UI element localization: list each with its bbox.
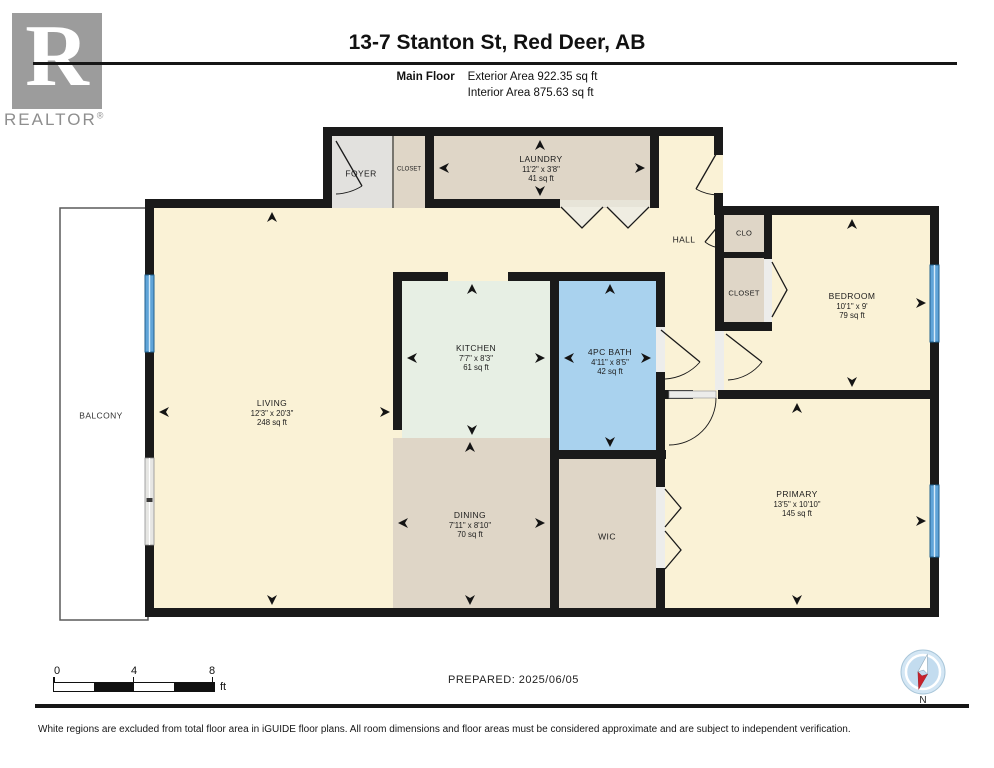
room-label-hall: HALL <box>673 235 696 246</box>
room-label-laundry: LAUNDRY 11'2" x 3'8" 41 sq ft <box>519 154 562 184</box>
page-title: 13-7 Stanton St, Red Deer, AB <box>0 31 994 55</box>
room-label-balcony: BALCONY <box>79 411 122 422</box>
room-label-bath: 4PC BATH 4'11" x 8'5" 42 sq ft <box>588 347 632 377</box>
floor-cream-right <box>656 206 939 617</box>
room-label-bedroom: BEDROOM 10'1" x 9' 79 sq ft <box>829 291 876 321</box>
room-label-clo: CLO <box>736 228 752 237</box>
floorplan-page: R REALTOR® 13-7 Stanton St, Red Deer, AB… <box>0 0 994 768</box>
footer-rule <box>35 704 969 708</box>
scale-segment <box>94 683 134 691</box>
primary-door-leaf <box>669 391 716 398</box>
disclaimer-text: White regions are excluded from total fl… <box>38 724 968 735</box>
room-label-kitchen: KITCHEN 7'7" x 8'3" 61 sq ft <box>456 343 496 373</box>
room-label-closet-top: CLOSET <box>397 166 421 174</box>
room-label-living: LIVING 12'3" x 20'3" 248 sq ft <box>251 398 294 428</box>
interior-area: Interior Area 875.63 sq ft <box>468 85 598 101</box>
scale-label-4: 4 <box>131 665 137 677</box>
room-label-closet-right: CLOSET <box>728 288 759 297</box>
closet-door-sill <box>764 259 772 322</box>
room-label-foyer: FOYER <box>345 169 376 180</box>
bedroom-door-sill <box>715 331 724 390</box>
scale-segment <box>174 683 214 691</box>
laundry-door-sill <box>560 200 650 207</box>
room-label-wic: WIC <box>598 532 616 543</box>
scale-bar <box>53 682 215 692</box>
room-label-primary: PRIMARY 13'5" x 10'10" 145 sq ft <box>773 489 820 519</box>
floorplan-drawing <box>0 0 994 768</box>
bath-door-sill <box>656 327 665 372</box>
area-summary: Exterior Area 922.35 sq ft Interior Area… <box>468 69 598 101</box>
scale-segment <box>54 683 94 691</box>
compass-north-label: N <box>919 695 926 706</box>
subtitle: Main Floor Exterior Area 922.35 sq ft In… <box>0 69 994 101</box>
scale-label-0: 0 <box>54 665 60 677</box>
scale-segment <box>134 683 174 691</box>
compass-icon: N <box>897 646 949 706</box>
prepared-date: PREPARED: 2025/06/05 <box>448 674 579 686</box>
wic-door-sill <box>656 487 665 568</box>
room-label-dining: DINING 7'11" x 8'10" 70 sq ft <box>449 510 491 540</box>
header-rule <box>33 62 957 65</box>
exterior-area: Exterior Area 922.35 sq ft <box>468 69 598 85</box>
foyer-closet-divider <box>392 136 394 208</box>
scale-label-8: 8 <box>209 665 215 677</box>
scale-unit: ft <box>220 681 226 693</box>
floor-label: Main Floor <box>397 69 455 101</box>
